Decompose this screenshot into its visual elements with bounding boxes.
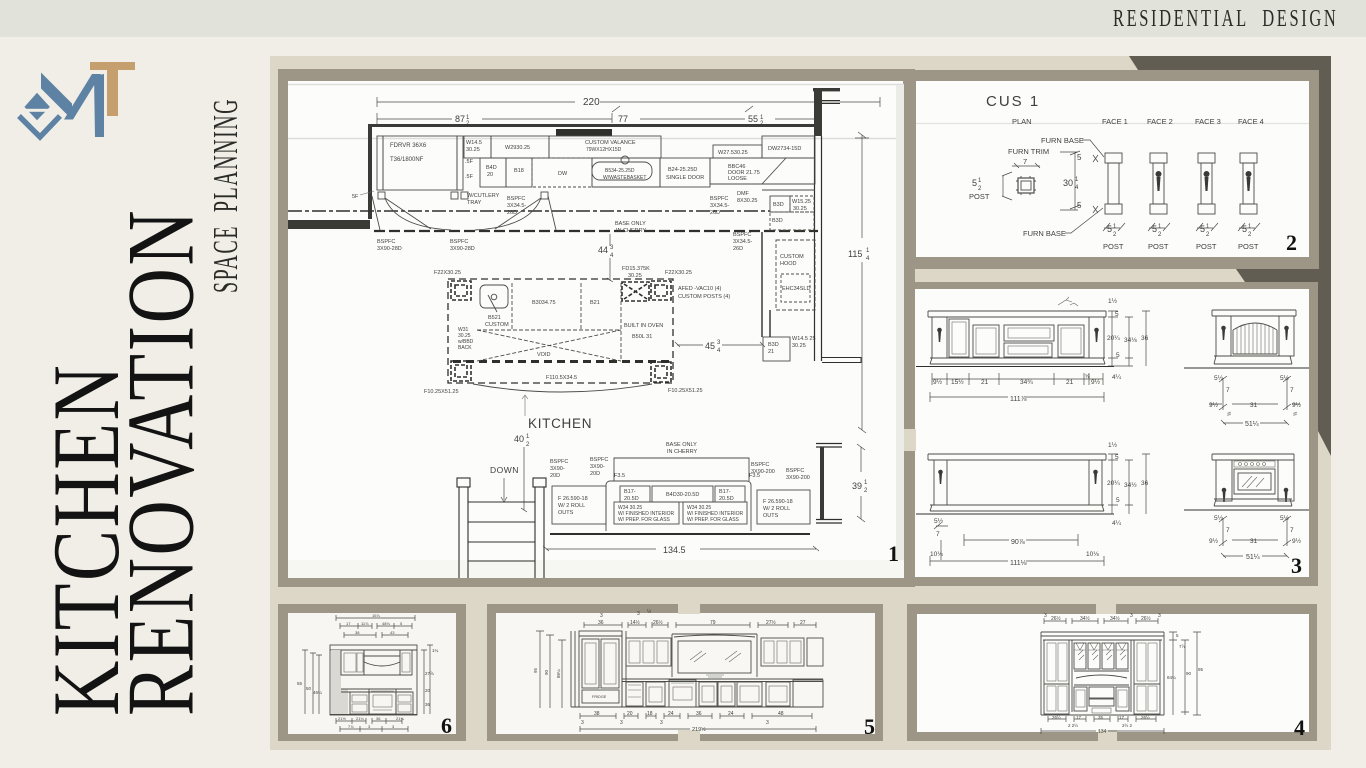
- svg-text:20¼: 20¼: [1107, 480, 1120, 487]
- svg-text:30.25: 30.25: [628, 273, 642, 279]
- svg-text:9½: 9½: [1209, 537, 1219, 545]
- svg-text:FD15.375K: FD15.375K: [622, 266, 650, 272]
- svg-text:1: 1: [866, 248, 870, 254]
- svg-text:PLAN: PLAN: [1012, 117, 1032, 126]
- svg-text:7: 7: [1290, 527, 1294, 534]
- svg-text:20: 20: [425, 688, 431, 693]
- svg-text:W/ 2 ROLL: W/ 2 ROLL: [763, 506, 790, 512]
- svg-text:7⅞: 7⅞: [348, 724, 354, 729]
- svg-text:5: 5: [972, 178, 977, 188]
- svg-text:40: 40: [514, 434, 524, 444]
- svg-text:1: 1: [864, 480, 868, 486]
- svg-text:POST: POST: [969, 192, 990, 201]
- svg-text:18: 18: [647, 711, 653, 717]
- svg-text:B18: B18: [514, 168, 524, 174]
- svg-text:3: 3: [766, 720, 769, 726]
- svg-text:F 26.590-18: F 26.590-18: [763, 499, 793, 505]
- svg-text:5: 5: [1115, 454, 1119, 461]
- svg-text:F10.25X51.25: F10.25X51.25: [424, 389, 459, 395]
- svg-text:20.5D: 20.5D: [719, 496, 734, 502]
- svg-text:17: 17: [1076, 715, 1082, 720]
- svg-text:30: 30: [1063, 178, 1073, 188]
- svg-text:90⅞: 90⅞: [1011, 539, 1025, 546]
- svg-text:17: 17: [346, 621, 351, 626]
- svg-text:⅝: ⅝: [1293, 411, 1299, 416]
- svg-text:77: 77: [618, 114, 628, 124]
- svg-text:BASE ONLY: BASE ONLY: [615, 221, 646, 227]
- svg-text:B21: B21: [590, 300, 600, 306]
- svg-text:F22X30.25: F22X30.25: [665, 270, 692, 276]
- svg-text:FACE 3: FACE 3: [1195, 117, 1221, 126]
- svg-text:2: 2: [864, 488, 868, 494]
- svg-text:B3D: B3D: [768, 342, 779, 348]
- svg-text:20: 20: [627, 711, 633, 717]
- svg-text:86¼: 86¼: [556, 669, 561, 678]
- svg-text:5½: 5½: [934, 517, 944, 525]
- svg-text:4¼: 4¼: [1112, 520, 1122, 527]
- svg-text:3: 3: [1130, 613, 1133, 619]
- svg-text:5: 5: [400, 621, 403, 626]
- svg-text:21: 21: [1066, 379, 1074, 386]
- svg-text:BSPFC: BSPFC: [751, 462, 769, 468]
- svg-text:8X30.25: 8X30.25: [737, 198, 758, 204]
- svg-text:10⅛: 10⅛: [930, 551, 943, 558]
- svg-text:20D: 20D: [550, 473, 560, 479]
- svg-text:B17-: B17-: [624, 489, 636, 495]
- svg-text:34½: 34½: [1124, 481, 1137, 489]
- svg-text:BSPFC: BSPFC: [550, 459, 568, 465]
- svg-text:B3D: B3D: [773, 202, 784, 208]
- svg-text:45: 45: [705, 341, 715, 351]
- svg-text:3: 3: [368, 724, 371, 729]
- svg-text:FACE 1: FACE 1: [1102, 117, 1128, 126]
- svg-text:3: 3: [637, 611, 640, 617]
- svg-text:21½: 21½: [338, 716, 346, 721]
- svg-text:FACE 2: FACE 2: [1147, 117, 1173, 126]
- svg-text:44: 44: [598, 245, 608, 255]
- svg-text:BSPFC: BSPFC: [450, 239, 468, 245]
- svg-text:3X90-200: 3X90-200: [786, 475, 810, 481]
- svg-text:5½: 5½: [1280, 514, 1290, 522]
- svg-text:5: 5: [1152, 224, 1157, 234]
- svg-text:2 2½: 2 2½: [1068, 722, 1078, 728]
- svg-text:W2930.25: W2930.25: [505, 145, 530, 151]
- svg-text:79WX12HX15D: 79WX12HX15D: [586, 147, 622, 153]
- svg-text:B4D: B4D: [486, 165, 497, 171]
- svg-text:1: 1: [1206, 224, 1210, 230]
- svg-text:26½: 26½: [1141, 615, 1152, 622]
- svg-text:W15.25: W15.25: [792, 199, 811, 205]
- svg-text:1: 1: [1113, 224, 1117, 230]
- svg-text:CUSTOM: CUSTOM: [780, 254, 804, 260]
- svg-text:30.25: 30.25: [793, 206, 807, 212]
- svg-text:51¼: 51¼: [1245, 421, 1259, 428]
- svg-text:IN CHERRY: IN CHERRY: [667, 449, 697, 455]
- svg-text:219½: 219½: [692, 726, 706, 733]
- svg-text:27⅞: 27⅞: [425, 671, 434, 676]
- svg-text:26½: 26½: [653, 619, 664, 626]
- svg-text:CUS 1: CUS 1: [986, 93, 1040, 110]
- svg-text:KITCHEN: KITCHEN: [528, 416, 592, 431]
- svg-text:1: 1: [526, 434, 530, 440]
- svg-text:5: 5: [1116, 352, 1120, 359]
- svg-text:W14.5 25: W14.5 25: [792, 336, 816, 342]
- svg-text:B3034.75: B3034.75: [532, 300, 556, 306]
- svg-text:HOOD: HOOD: [780, 261, 797, 267]
- svg-text:48: 48: [778, 711, 784, 717]
- svg-text:17: 17: [1119, 715, 1125, 720]
- svg-text:9½: 9½: [933, 378, 943, 386]
- svg-text:27: 27: [800, 620, 806, 626]
- svg-text:24: 24: [668, 711, 674, 717]
- svg-text:F 26.590-18: F 26.590-18: [558, 496, 588, 502]
- svg-text:26D: 26D: [733, 246, 743, 252]
- svg-text:87: 87: [455, 114, 465, 124]
- svg-text:BSPFC: BSPFC: [786, 468, 804, 474]
- svg-text:3X90-200: 3X90-200: [751, 469, 775, 475]
- svg-text:BSPFC: BSPFC: [590, 457, 608, 463]
- svg-text:5F: 5F: [352, 194, 359, 200]
- svg-text:5: 5: [1077, 201, 1082, 210]
- svg-text:POST: POST: [1238, 242, 1259, 251]
- svg-text:3: 3: [1044, 613, 1047, 619]
- svg-text:OUTS: OUTS: [763, 513, 779, 519]
- svg-text:36: 36: [696, 711, 702, 717]
- svg-text:50: 50: [306, 686, 312, 691]
- svg-text:FURN TRIM: FURN TRIM: [1008, 147, 1049, 156]
- svg-text:10⅛: 10⅛: [1086, 551, 1099, 558]
- svg-text:3: 3: [392, 724, 395, 729]
- svg-text:39: 39: [852, 481, 862, 491]
- svg-text:34½: 34½: [1080, 615, 1091, 622]
- svg-text:1¼: 1¼: [432, 648, 439, 653]
- svg-text:5: 5: [1077, 153, 1082, 162]
- svg-text:15½: 15½: [951, 378, 964, 386]
- svg-text:26D: 26D: [710, 210, 720, 216]
- svg-text:T36/1800NF: T36/1800NF: [390, 157, 424, 163]
- svg-text:7: 7: [1290, 387, 1294, 394]
- svg-text:3: 3: [610, 245, 614, 251]
- svg-text:134: 134: [1098, 729, 1107, 735]
- svg-text:AFED -VAC10 (4): AFED -VAC10 (4): [678, 286, 721, 292]
- svg-text:26½: 26½: [1141, 714, 1150, 720]
- svg-text:38: 38: [594, 711, 600, 717]
- svg-text:36: 36: [598, 620, 604, 626]
- svg-text:3: 3: [660, 720, 663, 726]
- svg-text:55: 55: [297, 681, 303, 686]
- svg-text:POST: POST: [1103, 242, 1124, 251]
- svg-text:.5F: .5F: [465, 159, 474, 165]
- svg-text:95: 95: [1198, 667, 1204, 672]
- svg-text:34¾: 34¾: [1020, 379, 1033, 386]
- svg-text:36: 36: [376, 716, 381, 721]
- svg-text:B24-25.25D: B24-25.25D: [668, 167, 697, 173]
- svg-text:55: 55: [748, 114, 758, 124]
- svg-text:2: 2: [526, 442, 530, 448]
- svg-text:W/ 2 ROLL: W/ 2 ROLL: [558, 503, 585, 509]
- svg-text:FURN BASE: FURN BASE: [1023, 229, 1066, 238]
- svg-text:30.25: 30.25: [792, 343, 806, 349]
- svg-text:5: 5: [1107, 224, 1112, 234]
- svg-text:95: 95: [533, 667, 538, 673]
- svg-text:BSPFC: BSPFC: [507, 196, 525, 202]
- svg-text:B3D: B3D: [772, 218, 783, 224]
- svg-text:20¼: 20¼: [1107, 335, 1120, 342]
- svg-text:7: 7: [1226, 387, 1230, 394]
- svg-text:15⅞: 15⅞: [372, 613, 380, 618]
- svg-text:21: 21: [768, 349, 774, 355]
- svg-text:POST: POST: [1196, 242, 1217, 251]
- svg-text:.5F: .5F: [465, 174, 474, 180]
- svg-text:7: 7: [936, 531, 940, 538]
- svg-text:20D: 20D: [590, 471, 600, 477]
- svg-text:31: 31: [1250, 538, 1258, 545]
- svg-text:F22X30.25: F22X30.25: [434, 270, 461, 276]
- svg-text:B521: B521: [488, 315, 501, 321]
- svg-text:BSPFC: BSPFC: [733, 232, 751, 238]
- svg-text:34⅛: 34⅛: [1124, 337, 1137, 344]
- svg-text:90: 90: [1186, 671, 1192, 676]
- svg-text:BSPFC: BSPFC: [377, 239, 395, 245]
- svg-text:DW: DW: [558, 171, 568, 177]
- svg-text:115: 115: [848, 249, 862, 259]
- svg-text:⅝: ⅝: [1227, 411, 1233, 416]
- svg-text:BSPFC: BSPFC: [710, 196, 728, 202]
- svg-text:BUILT IN OVEN: BUILT IN OVEN: [624, 323, 663, 329]
- svg-text:3: 3: [1158, 613, 1161, 619]
- svg-text:21: 21: [981, 379, 989, 386]
- svg-text:20: 20: [487, 172, 493, 178]
- svg-text:2: 2: [1248, 232, 1252, 238]
- svg-text:B4D30-20.5D: B4D30-20.5D: [666, 492, 699, 498]
- svg-text:BACK: BACK: [458, 345, 472, 351]
- svg-text:2: 2: [1158, 232, 1162, 238]
- svg-text:111⅛: 111⅛: [1010, 560, 1027, 567]
- svg-text:9½: 9½: [1292, 537, 1302, 545]
- svg-text:1½: 1½: [1108, 441, 1118, 449]
- svg-text:3X34.5-: 3X34.5-: [507, 203, 526, 209]
- svg-text:B50L 31: B50L 31: [632, 334, 652, 340]
- svg-text:90: 90: [544, 669, 549, 675]
- svg-text:3X90-28D: 3X90-28D: [450, 246, 475, 252]
- svg-text:½: ½: [647, 608, 652, 615]
- svg-text:38: 38: [355, 630, 360, 635]
- svg-text:DMF: DMF: [737, 191, 750, 197]
- svg-text:FRIDGE: FRIDGE: [592, 695, 607, 699]
- svg-text:35: 35: [1098, 715, 1104, 720]
- svg-text:7: 7: [1226, 527, 1230, 534]
- svg-text:W/CUTLERY: W/CUTLERY: [467, 193, 500, 199]
- svg-text:SINGLE DOOR: SINGLE DOOR: [666, 175, 704, 181]
- svg-text:IN CHERRY: IN CHERRY: [616, 228, 646, 234]
- svg-text:W27.530.25: W27.530.25: [718, 150, 748, 156]
- svg-text:2: 2: [1113, 232, 1117, 238]
- svg-text:EHC34SLD: EHC34SLD: [782, 286, 810, 292]
- svg-text:5½: 5½: [1214, 514, 1224, 522]
- svg-text:21¼: 21¼: [396, 716, 404, 721]
- svg-text:F10.25X51.25: F10.25X51.25: [668, 388, 703, 394]
- svg-text:5: 5: [1242, 224, 1247, 234]
- svg-text:9½: 9½: [1209, 401, 1219, 409]
- svg-text:POST: POST: [1148, 242, 1169, 251]
- svg-text:34½: 34½: [1110, 615, 1121, 622]
- svg-text:W14.5: W14.5: [466, 140, 482, 146]
- svg-text:2: 2: [1206, 232, 1210, 238]
- svg-text:CUSTOM: CUSTOM: [485, 322, 509, 328]
- svg-text:84¼: 84¼: [1167, 675, 1176, 680]
- svg-text:31: 31: [1250, 402, 1258, 409]
- svg-text:F3.5: F3.5: [614, 473, 625, 479]
- svg-text:3X34.5-: 3X34.5-: [733, 239, 752, 245]
- svg-text:5½: 5½: [1280, 374, 1290, 382]
- svg-text:3X90-: 3X90-: [550, 466, 565, 472]
- svg-text:DOWN: DOWN: [490, 465, 519, 475]
- svg-text:B534-25.25D: B534-25.25D: [605, 168, 635, 174]
- svg-text:5½: 5½: [1214, 374, 1224, 382]
- svg-text:CUSTOM VALANCE: CUSTOM VALANCE: [585, 140, 636, 146]
- svg-text:43: 43: [390, 630, 395, 635]
- svg-text:FACE 4: FACE 4: [1238, 117, 1264, 126]
- svg-text:3X90-28D: 3X90-28D: [377, 246, 402, 252]
- svg-text:VOID: VOID: [537, 352, 550, 358]
- svg-text:26D: 26D: [507, 210, 517, 216]
- svg-text:1½: 1½: [1108, 297, 1118, 305]
- svg-text:5: 5: [1116, 497, 1120, 504]
- svg-text:26½: 26½: [1052, 714, 1061, 720]
- svg-text:CUSTOM POSTS (4): CUSTOM POSTS (4): [678, 294, 730, 300]
- svg-text:26½: 26½: [1051, 615, 1062, 622]
- svg-text:4: 4: [1075, 185, 1079, 191]
- svg-text:51¼: 51¼: [1246, 554, 1260, 561]
- svg-text:48⅛: 48⅛: [382, 621, 390, 626]
- svg-text:4: 4: [717, 348, 721, 354]
- svg-text:3: 3: [717, 340, 721, 346]
- svg-text:21¼: 21¼: [356, 716, 364, 721]
- svg-text:9½: 9½: [1292, 401, 1302, 409]
- svg-text:5: 5: [1176, 633, 1179, 638]
- svg-text:LOOSE: LOOSE: [728, 176, 747, 182]
- svg-text:B17-: B17-: [719, 489, 731, 495]
- svg-text:111⅞: 111⅞: [1010, 396, 1027, 403]
- svg-text:2½ 2: 2½ 2: [1122, 722, 1133, 728]
- svg-text:46¼: 46¼: [313, 690, 322, 695]
- svg-text:3: 3: [600, 613, 603, 619]
- svg-text:FURN BASE: FURN BASE: [1041, 136, 1084, 145]
- svg-text:220: 220: [583, 97, 600, 108]
- svg-text:30.25: 30.25: [466, 147, 480, 153]
- svg-text:1: 1: [1248, 224, 1252, 230]
- svg-text:14½: 14½: [630, 619, 641, 626]
- svg-text:27½: 27½: [766, 619, 777, 626]
- svg-text:FDRVR 36X6: FDRVR 36X6: [390, 143, 427, 149]
- svg-text:W/ PREP. FOR GLASS: W/ PREP. FOR GLASS: [618, 517, 671, 523]
- svg-text:OUTS: OUTS: [558, 510, 574, 516]
- svg-text:BASE ONLY: BASE ONLY: [666, 442, 697, 448]
- svg-text:4¼: 4¼: [1112, 374, 1122, 381]
- svg-text:5: 5: [1115, 311, 1119, 318]
- svg-text:TRAY: TRAY: [467, 200, 482, 206]
- svg-text:W/WASTEBASKET: W/WASTEBASKET: [603, 175, 646, 181]
- svg-text:36: 36: [425, 702, 431, 707]
- svg-text:9½: 9½: [1091, 378, 1101, 386]
- svg-text:5: 5: [1200, 224, 1205, 234]
- svg-text:DW2734-15D: DW2734-15D: [768, 146, 801, 152]
- svg-text:F110.5X34.5: F110.5X34.5: [546, 375, 577, 381]
- svg-text:3X34.5-: 3X34.5-: [710, 203, 729, 209]
- svg-text:134.5: 134.5: [663, 545, 686, 555]
- svg-text:1: 1: [1158, 224, 1162, 230]
- svg-text:7⅞: 7⅞: [1179, 644, 1186, 649]
- svg-text:79: 79: [710, 620, 716, 626]
- svg-text:36: 36: [1141, 480, 1149, 487]
- svg-text:3: 3: [581, 720, 584, 726]
- svg-text:4: 4: [866, 256, 870, 262]
- svg-text:W/ PREP. FOR GLASS: W/ PREP. FOR GLASS: [687, 517, 740, 523]
- svg-text:24: 24: [728, 711, 734, 717]
- svg-text:1: 1: [1075, 177, 1079, 183]
- svg-text:7: 7: [1023, 157, 1027, 166]
- svg-text:⅝: ⅝: [1085, 374, 1090, 380]
- svg-text:3X90-: 3X90-: [590, 464, 605, 470]
- svg-text:3: 3: [620, 720, 623, 726]
- svg-text:1: 1: [978, 178, 982, 184]
- svg-text:20.5D: 20.5D: [624, 496, 639, 502]
- svg-text:36: 36: [1141, 335, 1149, 342]
- svg-text:4: 4: [610, 253, 614, 259]
- svg-text:11⅞: 11⅞: [361, 621, 369, 626]
